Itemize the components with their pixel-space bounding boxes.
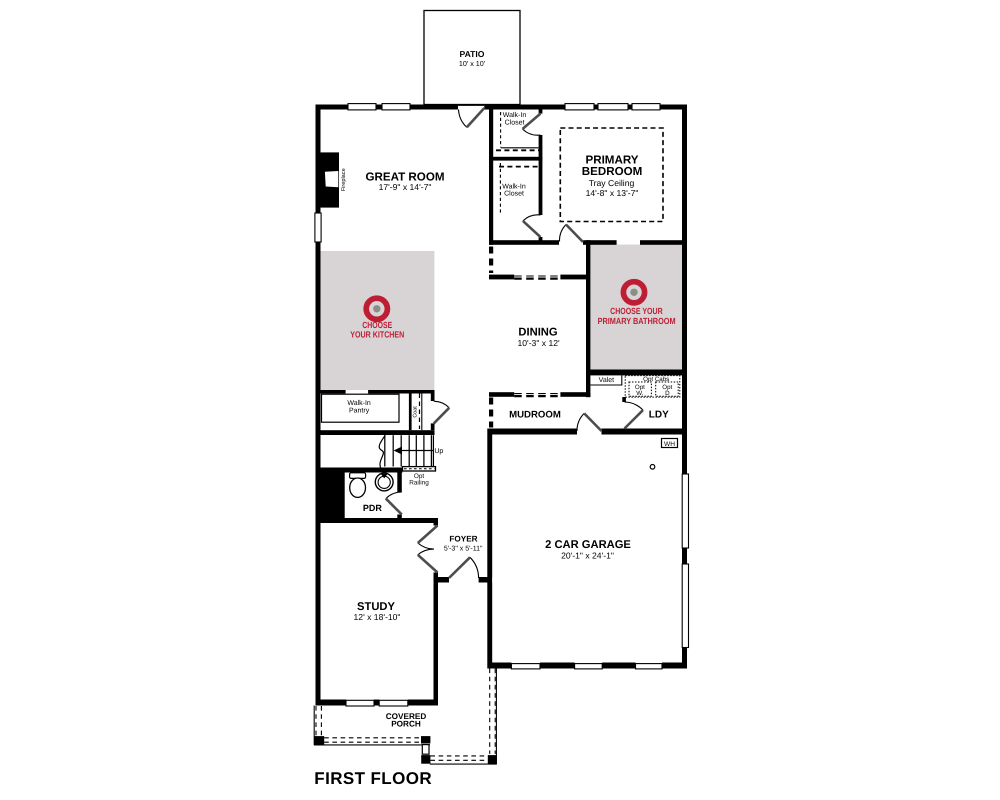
svg-text:Closet: Closet: [504, 190, 524, 198]
svg-text:Walk-In: Walk-In: [347, 399, 371, 407]
svg-text:Valet: Valet: [599, 376, 614, 384]
svg-text:Up: Up: [434, 448, 443, 455]
svg-text:10' x 10': 10' x 10': [459, 59, 486, 68]
svg-text:14'-8" x 13'-7": 14'-8" x 13'-7": [586, 188, 639, 198]
svg-text:PDR: PDR: [363, 503, 383, 513]
svg-text:W.: W.: [636, 390, 643, 397]
svg-text:BEDROOM: BEDROOM: [582, 165, 643, 178]
svg-text:Walk-In: Walk-In: [503, 111, 527, 119]
svg-text:FIRST FLOOR: FIRST FLOOR: [314, 769, 432, 788]
svg-text:D: D: [665, 390, 670, 397]
svg-text:LDY: LDY: [649, 410, 669, 421]
svg-text:MUDROOM: MUDROOM: [509, 409, 561, 420]
svg-text:STUDY: STUDY: [357, 601, 395, 613]
svg-text:Coat: Coat: [412, 406, 418, 418]
svg-text:Walk-In: Walk-In: [502, 182, 526, 190]
svg-text:YOUR KITCHEN: YOUR KITCHEN: [350, 330, 404, 340]
svg-text:Tray Ceiling: Tray Ceiling: [589, 178, 635, 188]
svg-text:Railing: Railing: [409, 480, 429, 487]
svg-text:17'-9" x 14'-7": 17'-9" x 14'-7": [379, 182, 432, 192]
svg-text:WH: WH: [664, 441, 675, 448]
svg-text:Pantry: Pantry: [349, 407, 370, 414]
svg-text:PRIMARY BATHROOM: PRIMARY BATHROOM: [598, 316, 676, 326]
svg-text:CHOOSE: CHOOSE: [362, 320, 392, 330]
svg-text:12' x 18'-10": 12' x 18'-10": [354, 612, 401, 622]
svg-text:FOYER: FOYER: [449, 534, 477, 543]
svg-text:10'-3" x 12': 10'-3" x 12': [518, 338, 561, 348]
svg-text:DINING: DINING: [518, 327, 557, 339]
svg-text:PORCH: PORCH: [391, 719, 421, 728]
svg-text:Closet: Closet: [505, 118, 525, 126]
svg-text:2 CAR GARAGE: 2 CAR GARAGE: [545, 539, 631, 551]
svg-text:PATIO: PATIO: [460, 49, 485, 59]
svg-text:Fireplace: Fireplace: [340, 168, 347, 191]
svg-text:5'-3" x 5'-11": 5'-3" x 5'-11": [444, 545, 483, 552]
svg-text:CHOOSE YOUR: CHOOSE YOUR: [610, 306, 663, 316]
svg-text:20'-1" x 24'-1": 20'-1" x 24'-1": [561, 551, 614, 561]
svg-text:Opt Cabs: Opt Cabs: [643, 376, 669, 383]
